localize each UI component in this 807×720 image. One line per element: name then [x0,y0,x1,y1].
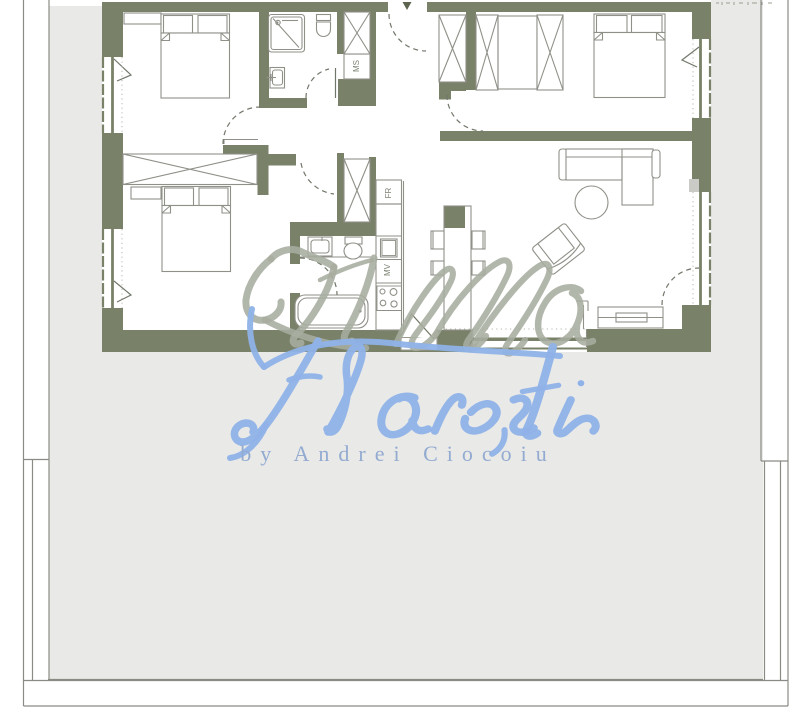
svg-text:MV: MV [383,263,392,276]
svg-text:by Andrei Ciocoiu: by Andrei Ciocoiu [240,441,556,466]
svg-text:FR: FR [384,187,393,198]
svg-text:MS: MS [352,60,361,72]
